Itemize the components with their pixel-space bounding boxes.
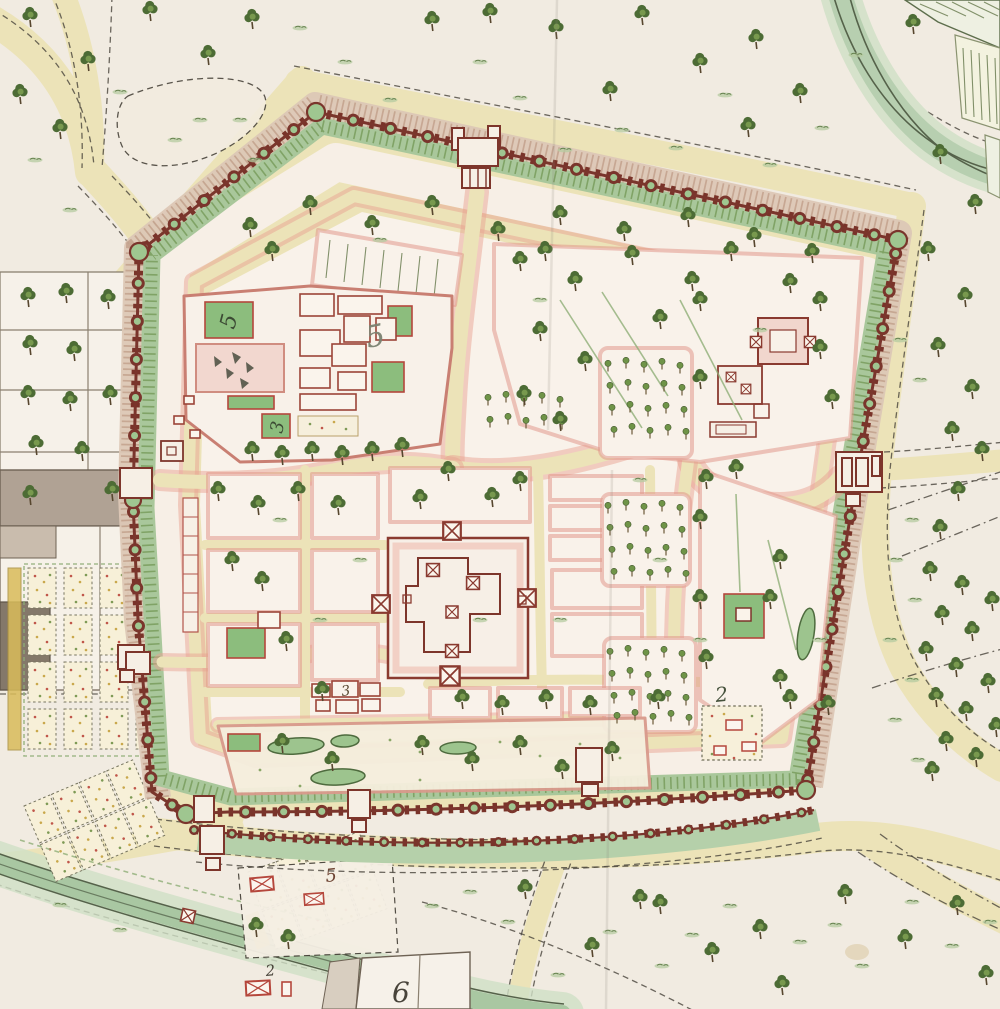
grass-tuft-icon bbox=[905, 900, 920, 905]
gate-cross-icon bbox=[443, 522, 461, 540]
step-tank bbox=[710, 422, 756, 437]
corner-bastion bbox=[889, 231, 907, 249]
road-east-branch bbox=[878, 460, 1000, 470]
house bbox=[336, 700, 358, 713]
grass-tuft-icon bbox=[473, 60, 488, 65]
palace-building bbox=[338, 372, 366, 390]
grass-tuft-icon bbox=[615, 128, 630, 133]
palace-building bbox=[300, 394, 356, 410]
gate-cross-icon bbox=[726, 372, 736, 382]
flower-bed-icon bbox=[64, 615, 92, 655]
gate-cross-icon bbox=[427, 564, 440, 577]
grass-tuft-icon bbox=[815, 126, 830, 131]
grass-tuft-icon bbox=[383, 98, 398, 103]
grass-tuft-icon bbox=[248, 158, 263, 163]
small-building bbox=[282, 982, 291, 996]
grass-tuft-icon bbox=[28, 158, 43, 163]
grass-tuft-icon bbox=[753, 328, 768, 333]
gray-building bbox=[0, 526, 56, 558]
gate-cross-icon bbox=[446, 606, 458, 618]
grass-tuft-icon bbox=[473, 618, 488, 623]
grass-tuft-icon bbox=[945, 944, 960, 949]
grass-tuft-icon bbox=[828, 923, 843, 928]
flower-bed-icon bbox=[28, 662, 56, 702]
grass-tuft-icon bbox=[501, 920, 516, 925]
grass-tuft-icon bbox=[293, 26, 308, 31]
grass-tuft-icon bbox=[718, 93, 733, 98]
grass-tuft-icon bbox=[913, 378, 928, 383]
corner-bastion bbox=[130, 243, 148, 261]
hamlet-plot bbox=[238, 858, 398, 958]
pavilion-west bbox=[161, 441, 183, 461]
numeral-label-two-riverside: 2 bbox=[264, 961, 276, 980]
grass-tuft-icon bbox=[813, 638, 828, 643]
watercolor-city-map: 6 5 2 6 bbox=[0, 0, 1000, 1009]
white-plot bbox=[356, 952, 470, 1009]
gate-cross-icon bbox=[467, 577, 480, 590]
outbuilding bbox=[174, 416, 184, 424]
flower-bed-icon bbox=[28, 615, 56, 655]
central-compound bbox=[372, 522, 536, 685]
garden-building bbox=[726, 720, 742, 730]
grass-tuft-icon bbox=[233, 118, 248, 123]
grass-tuft-icon bbox=[883, 638, 898, 643]
south-gate-west bbox=[348, 790, 370, 832]
flower-bed-icon bbox=[64, 709, 92, 749]
river-sluice-icon bbox=[180, 908, 195, 923]
grass-tuft-icon bbox=[353, 558, 368, 563]
grass-tuft-icon bbox=[911, 758, 926, 763]
grass-tuft-icon bbox=[908, 598, 923, 603]
grass-tuft-icon bbox=[793, 940, 808, 945]
grass-tuft-icon bbox=[425, 904, 440, 909]
building-x-icon bbox=[304, 893, 324, 906]
grass-tuft-icon bbox=[193, 118, 208, 123]
rect-tank bbox=[228, 734, 260, 751]
palace-building bbox=[300, 368, 330, 388]
building-x-icon bbox=[246, 980, 271, 995]
gate-cross-icon bbox=[741, 384, 751, 394]
grass-tuft-icon bbox=[338, 60, 353, 65]
building-x-icon bbox=[250, 876, 274, 891]
corner-bastion bbox=[797, 781, 815, 799]
grass-tuft-icon bbox=[633, 478, 648, 483]
grass-tuft-icon bbox=[113, 928, 128, 933]
grass-tuft-icon bbox=[669, 146, 684, 151]
palace-building bbox=[300, 294, 334, 316]
lane bbox=[538, 472, 542, 688]
corner-bastion bbox=[177, 805, 195, 823]
palace-building bbox=[332, 344, 366, 366]
gate-cross-icon bbox=[750, 336, 761, 347]
gate-cross-icon bbox=[446, 645, 459, 658]
flower-bed-icon bbox=[28, 709, 56, 749]
block bbox=[312, 474, 378, 538]
numeral-label-six-bottom: 6 bbox=[392, 976, 410, 1009]
grass-tuft-icon bbox=[983, 920, 998, 925]
hamlet-south: 5 bbox=[238, 858, 398, 958]
grass-tuft-icon bbox=[685, 933, 700, 938]
grass-tuft-icon bbox=[888, 718, 903, 723]
field-plot bbox=[955, 35, 1000, 130]
grass-tuft-icon bbox=[551, 973, 566, 978]
yellow-strip bbox=[8, 568, 21, 750]
garden-building bbox=[742, 742, 756, 751]
grass-tuft-icon bbox=[653, 558, 668, 563]
house bbox=[360, 683, 380, 696]
grass-tuft-icon bbox=[603, 930, 618, 935]
green-courtyard bbox=[372, 362, 404, 392]
grass-tuft-icon bbox=[553, 618, 568, 623]
house bbox=[316, 700, 330, 711]
grass-tuft-icon bbox=[693, 638, 708, 643]
palace-building bbox=[338, 296, 382, 314]
green-strip bbox=[228, 396, 274, 409]
grass-tuft-icon bbox=[849, 53, 864, 58]
grass-tuft-icon bbox=[273, 518, 288, 523]
grass-tuft-icon bbox=[113, 90, 128, 95]
flower-bed-icon bbox=[28, 568, 56, 608]
grass-tuft-icon bbox=[905, 518, 920, 523]
grass-tuft-icon bbox=[655, 964, 670, 969]
garden-building bbox=[714, 746, 726, 755]
grass-tuft-icon bbox=[533, 298, 548, 303]
block bbox=[208, 550, 300, 612]
outbuilding bbox=[184, 396, 194, 404]
green-courtyard bbox=[227, 628, 265, 658]
building bbox=[258, 612, 280, 628]
grass-tuft-icon bbox=[889, 558, 904, 563]
mosque-court bbox=[770, 330, 796, 352]
bottom-plot-six: 6 bbox=[322, 952, 470, 1009]
flower-bed-icon bbox=[100, 709, 128, 749]
flower-bed-icon bbox=[64, 568, 92, 608]
numeral-label-five-hamlet: 5 bbox=[324, 865, 338, 887]
outbuilding bbox=[190, 430, 200, 438]
grass-tuft-icon bbox=[763, 163, 778, 168]
field-plot bbox=[985, 135, 1000, 198]
corner-bastion bbox=[307, 103, 325, 121]
grass-tuft-icon bbox=[373, 238, 388, 243]
grass-tuft-icon bbox=[723, 904, 738, 909]
grass-tuft-icon bbox=[463, 890, 478, 895]
block bbox=[390, 468, 530, 522]
flower-bed-icon bbox=[64, 662, 92, 702]
speckled-garden bbox=[298, 416, 358, 436]
grass-tuft-icon bbox=[558, 148, 573, 153]
grass-tuft-icon bbox=[63, 208, 78, 213]
grass-tuft-icon bbox=[313, 618, 328, 623]
grass-tuft-icon bbox=[53, 903, 68, 908]
palace-complex-northwest: 5 5 3 bbox=[174, 286, 452, 462]
rock-garden-court bbox=[196, 344, 284, 392]
grass-tuft-icon bbox=[168, 138, 183, 143]
block bbox=[312, 550, 378, 612]
stain bbox=[845, 944, 869, 960]
pavilion bbox=[736, 608, 751, 621]
gate-cross-icon bbox=[372, 595, 390, 613]
gate-cross-icon bbox=[440, 666, 459, 685]
grass-tuft-icon bbox=[905, 678, 920, 683]
grass-tuft-icon bbox=[855, 964, 870, 969]
house bbox=[362, 699, 380, 711]
flower-garden-walled bbox=[702, 706, 762, 760]
grass-tuft-icon bbox=[513, 96, 528, 101]
numeral-label-two-garden: 2 bbox=[713, 682, 729, 707]
block bbox=[312, 624, 378, 680]
west-gate-upper bbox=[120, 468, 152, 498]
grass-tuft-icon bbox=[893, 338, 908, 343]
